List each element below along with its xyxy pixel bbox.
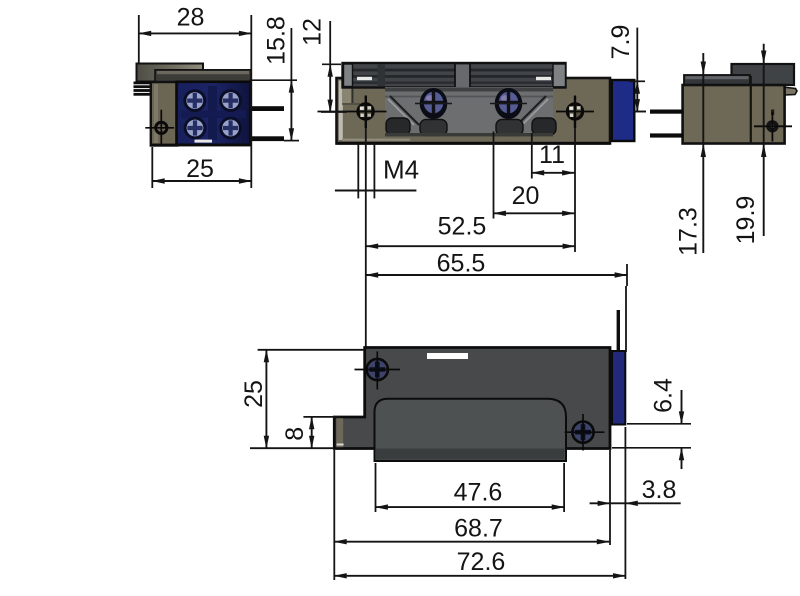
svg-text:28: 28 [177, 4, 205, 32]
svg-text:8: 8 [281, 427, 309, 441]
svg-text:17.3: 17.3 [675, 207, 703, 256]
svg-text:72.6: 72.6 [457, 548, 506, 576]
svg-text:15.8: 15.8 [263, 16, 291, 65]
svg-text:25: 25 [240, 380, 268, 408]
svg-text:19.9: 19.9 [732, 196, 760, 245]
svg-text:M4: M4 [383, 155, 419, 185]
svg-text:11: 11 [539, 141, 565, 169]
svg-text:52.5: 52.5 [438, 213, 487, 241]
svg-text:68.7: 68.7 [454, 515, 503, 543]
svg-text:6.4: 6.4 [650, 378, 678, 413]
svg-text:65.5: 65.5 [437, 250, 486, 278]
svg-text:12: 12 [299, 18, 327, 46]
svg-text:20: 20 [512, 182, 540, 210]
svg-text:25: 25 [186, 155, 214, 183]
svg-text:3.8: 3.8 [642, 476, 677, 504]
svg-text:7.9: 7.9 [607, 25, 635, 60]
svg-text:47.6: 47.6 [454, 479, 503, 507]
